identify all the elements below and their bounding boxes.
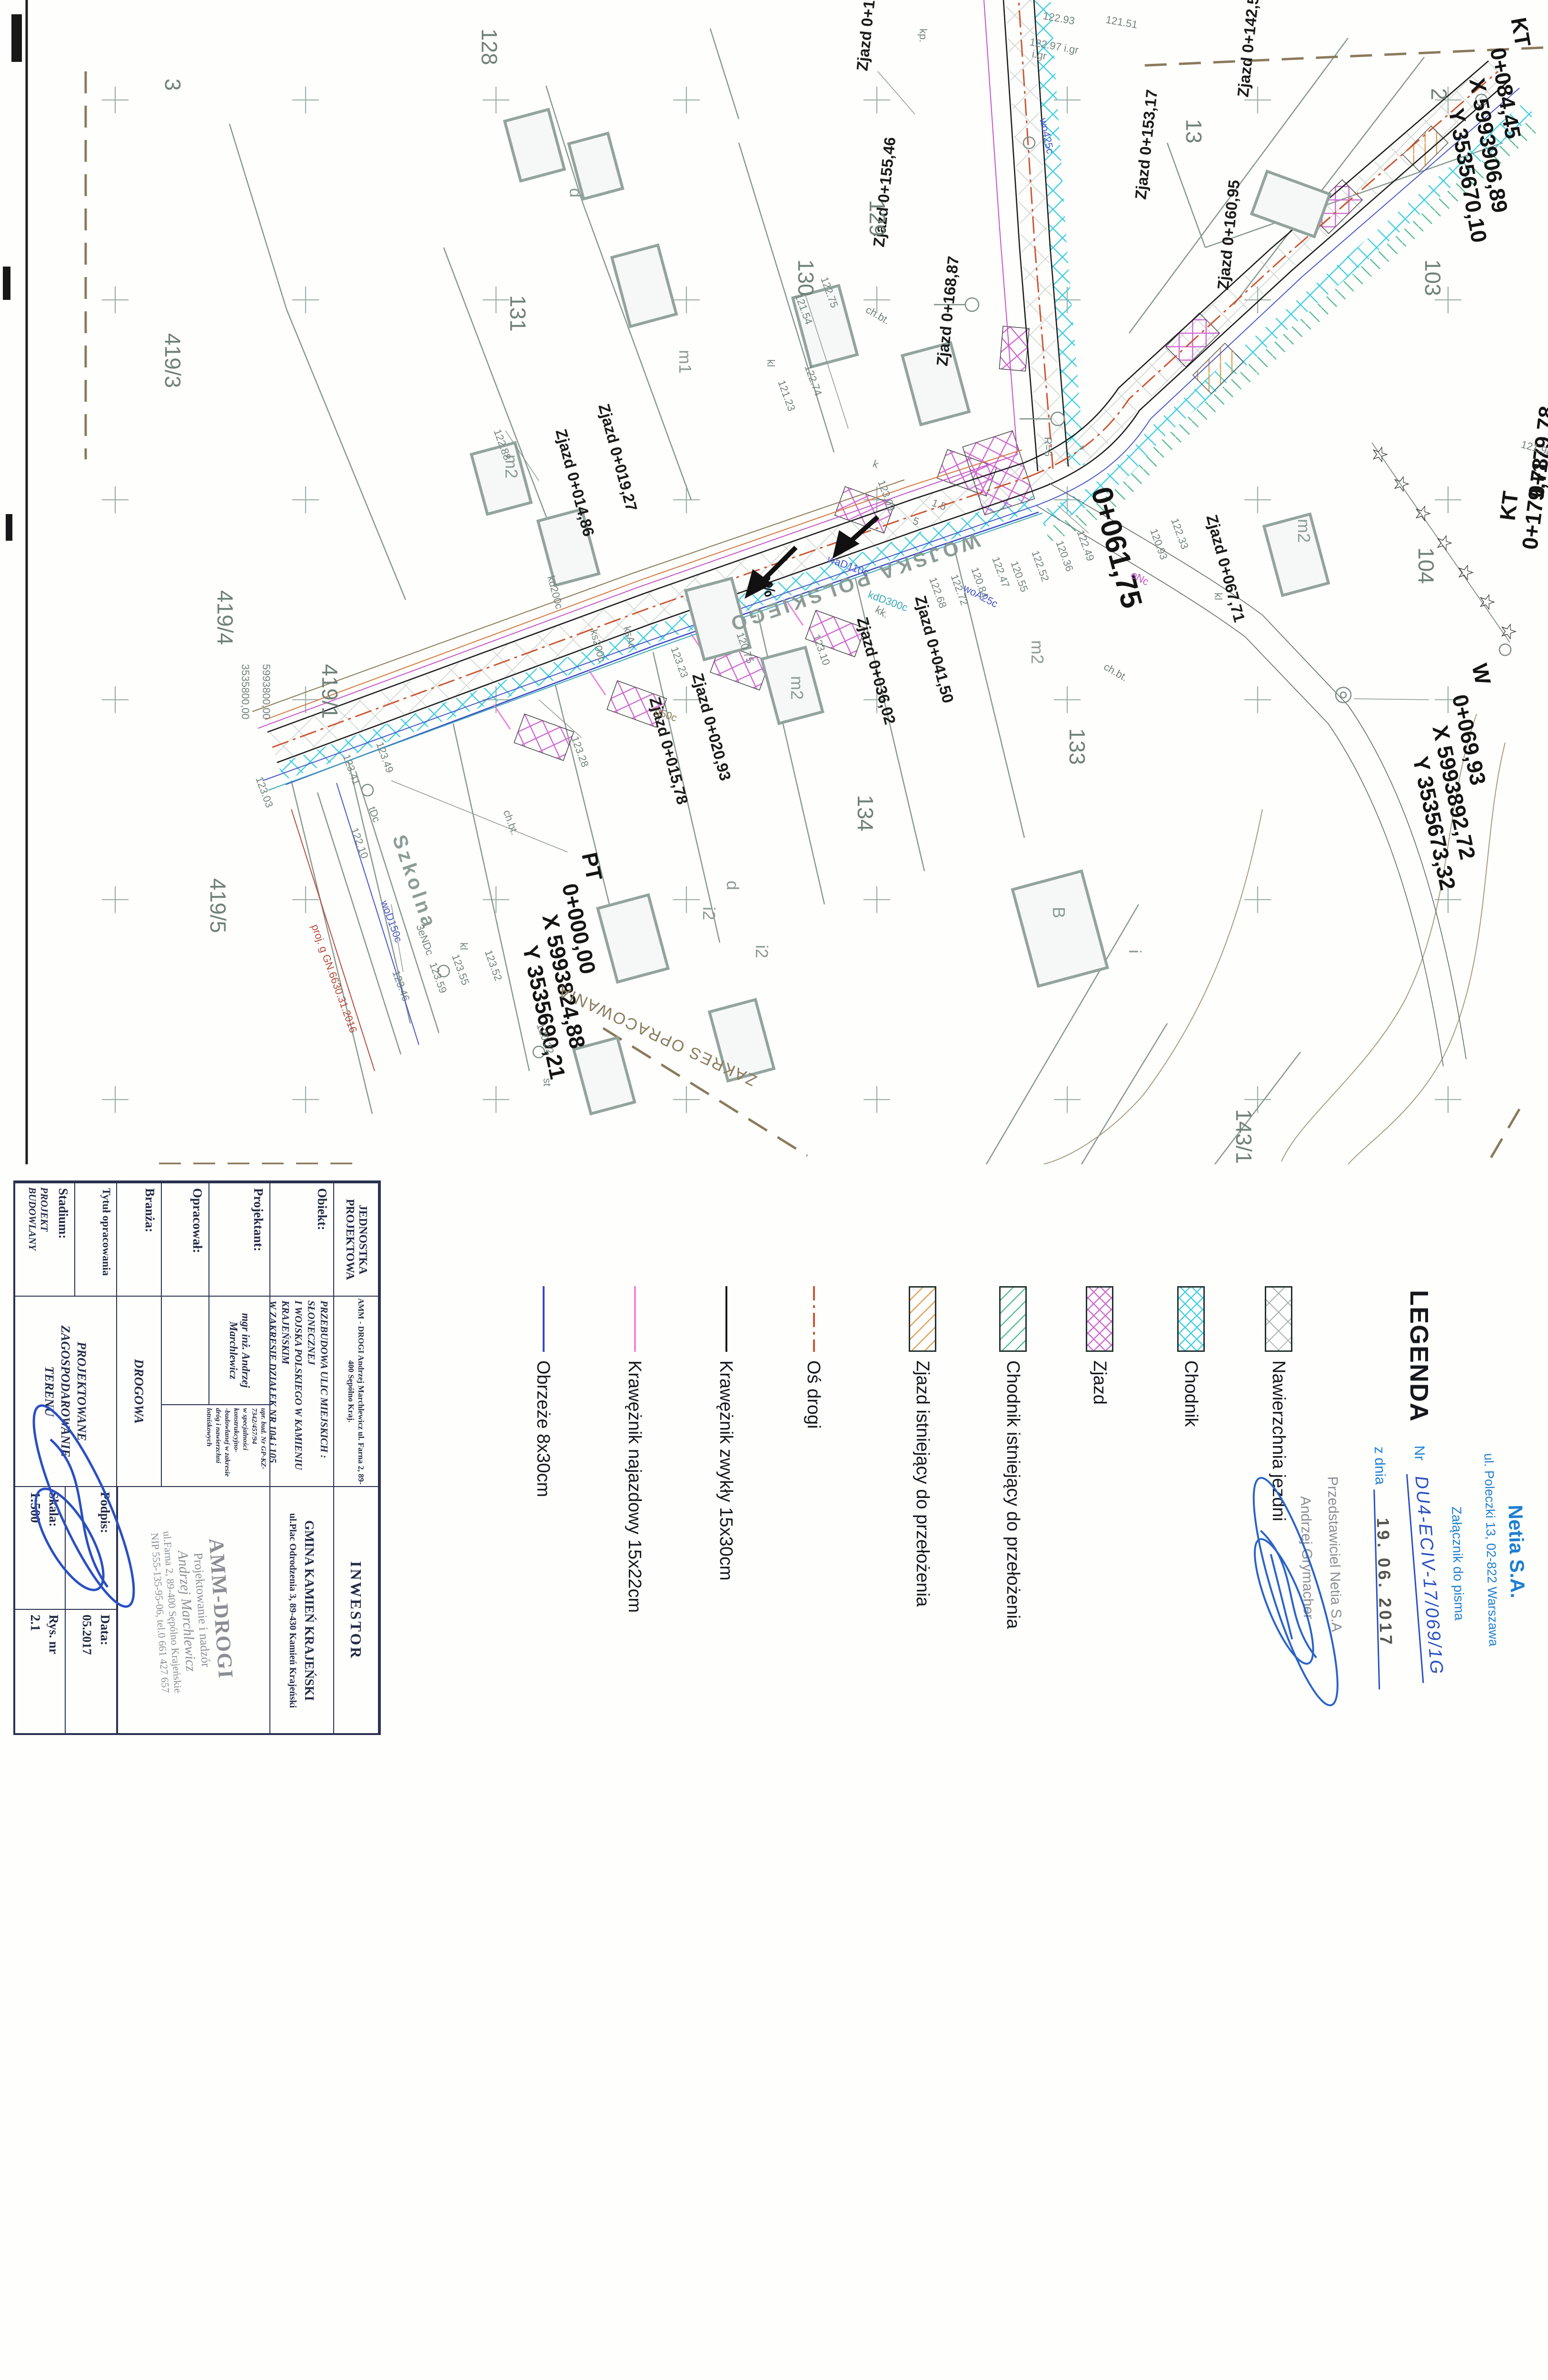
stadium-label: Stadium: [52, 1183, 74, 1296]
svg-text:☆: ☆ [1454, 563, 1477, 582]
opracowal-label: Opracował: [186, 1183, 208, 1296]
svg-text:kl: kl [765, 359, 777, 367]
svg-text:103: 103 [1420, 259, 1445, 296]
netia-address: ul. Poleczki 13, 02-822 Warszawa [1481, 1453, 1501, 1646]
netia-attachment: Załącznik do pisma [1449, 1506, 1467, 1620]
obrzeze-legend-line [543, 1286, 545, 1352]
svg-text:133: 133 [1065, 728, 1090, 765]
svg-text:☆: ☆ [1389, 475, 1413, 493]
svg-text:3: 3 [160, 79, 185, 91]
obiekt-label: Obiekt: [311, 1183, 333, 1296]
svg-text:☆: ☆ [1497, 622, 1520, 641]
svg-text:kl: kl [458, 942, 470, 950]
stadium-value: PROJEKT BUDOWLANY [24, 1183, 52, 1296]
legend-title: LEGENDA [1404, 1290, 1434, 1422]
upr-line3: -budowlanej w zakresie dróg i nawierzchn… [213, 1408, 231, 1483]
grid-label-y: 3535800,00 [239, 664, 251, 719]
legend-item-obrzeze: Obrzeże 8x30cm [524, 1257, 557, 1561]
svg-text:☆: ☆ [1475, 593, 1498, 611]
obiekt-line2: I WOJSKA POLSKIEGO W KAMIENIU KRAJEŃSKIM [279, 1300, 305, 1482]
svg-text:419/5: 419/5 [206, 878, 230, 933]
opracowal-value [161, 1296, 209, 1405]
jednostka-label: JEDNOSTKA PROJEKTOWA [339, 1183, 373, 1296]
obiekt-line3: W ZAKRESIE DZIAŁEK NR 104 i 105 [269, 1300, 279, 1482]
svg-text:131: 131 [506, 295, 530, 332]
svg-text:m2: m2 [1294, 519, 1314, 543]
netia-company: Netia S.A. [1504, 1505, 1529, 1598]
legend-item-os-drogi: Oś drogi [794, 1257, 827, 1561]
nawierzchnia-swatch [1265, 1286, 1292, 1352]
inwestor-name: GMINA KAMIEŃ KRAJEŃSKI [302, 1513, 317, 1708]
amm-drogi-stamp: AMM-DROGI Projektowanie i nadzór Andrzej… [149, 1527, 239, 1695]
netia-nr-label: Nr [1411, 1445, 1428, 1461]
zjazd-swatch [1086, 1286, 1113, 1352]
upr-line1: upr. bud. Nr GP-KZ-7342/457/94 [249, 1408, 268, 1483]
svg-text:m1: m1 [675, 350, 695, 374]
tytul-label: Tytuł opracowania [96, 1183, 116, 1296]
jednostka-value: AMM - DROGI Andrzej Marchlewicz ul. Farn… [346, 1297, 366, 1486]
svg-text:i2: i2 [752, 945, 772, 958]
chodnik-istniejacy-swatch [999, 1286, 1027, 1352]
kraweznik-najazdowy-line [634, 1286, 636, 1352]
svg-text:KT: KT [1506, 16, 1536, 49]
svg-text:419/4: 419/4 [213, 590, 238, 645]
netia-signature [1211, 1457, 1376, 1727]
projektant-name: mgr inż. Andrzej Marchlewicz [227, 1297, 252, 1404]
netia-stamp: Netia S.A. ul. Poleczki 13, 02-822 Warsz… [1191, 1433, 1533, 1756]
site-plan-map: ☆ ☆ ☆ ☆ ☆ ☆ ☆ KT 0+084,45 X 5993906,89 Y… [0, 0, 1548, 1164]
chodnik-swatch [1177, 1286, 1205, 1352]
inwestor-label: INWESTOR [344, 1557, 369, 1665]
legend-item-kraweznik-najazdowy: Krawężnik najazdowy 15x22cm [615, 1257, 648, 1561]
netia-date-label: z dnia [1371, 1447, 1388, 1485]
svg-text:143/12: 143/12 [1231, 1109, 1256, 1164]
legend-item-chodnik-istniejacy: Chodnik istniejący do przełożenia [993, 1257, 1027, 1561]
svg-text:2: 2 [1427, 88, 1451, 100]
grid-label-x: 5993800,00 [260, 664, 272, 719]
svg-text:☆: ☆ [1411, 504, 1434, 523]
projektant-label: Projektant: [247, 1183, 269, 1296]
svg-text:B: B [1049, 907, 1069, 918]
netia-nr-value: DU4-ECIV-17/069/1G [1406, 1472, 1447, 1683]
svg-text:☆: ☆ [1368, 445, 1391, 464]
svg-text:KT: KT [1495, 490, 1523, 522]
svg-text:128: 128 [477, 29, 502, 65]
upr-line2: w specjalności konstrukcyjno- [231, 1408, 249, 1483]
os-drogi-line [813, 1286, 815, 1352]
svg-text:kl: kl [1212, 593, 1224, 600]
svg-text:419/3: 419/3 [160, 333, 185, 388]
svg-text:R=6: R=6 [1042, 437, 1054, 456]
svg-text:13: 13 [1181, 119, 1206, 143]
legend-item-zjazd-istniejacy: Zjazd istniejący do przełożenia [903, 1257, 936, 1561]
svg-text:d: d [566, 188, 585, 198]
inwestor-address: ul.Plac Odrodzenia 3, 89-430 Kamień Kraj… [287, 1513, 298, 1708]
titleblock-signature [12, 1382, 150, 1649]
drawing-sheet: ☆ ☆ ☆ ☆ ☆ ☆ ☆ KT 0+084,45 X 5993906,89 Y… [0, 0, 1548, 2380]
svg-text:419/1: 419/1 [318, 664, 342, 719]
legend-item-zjazd: Zjazd [1080, 1257, 1113, 1561]
svg-text:m2: m2 [1028, 640, 1047, 664]
svg-text:kp.: kp. [917, 29, 929, 42]
kraweznik-zwykly-line [725, 1286, 727, 1352]
svg-text:m2: m2 [787, 676, 807, 700]
obiekt-line1: PRZEBUDOWA ULIC MIEJSKICH : SŁONECZNEJ [305, 1300, 330, 1482]
svg-text:134: 134 [853, 795, 878, 832]
svg-text:st: st [541, 1078, 553, 1086]
svg-text:130: 130 [794, 259, 818, 296]
legend-item-kraweznik-zwykly: Krawężnik zwykły 15x30cm [706, 1257, 740, 1561]
upr-line4: lotniskowych [204, 1408, 213, 1483]
title-block: JEDNOSTKA PROJEKTOWA AMM - DROGI Andrzej… [13, 1180, 381, 1735]
scanned-page: ☆ ☆ ☆ ☆ ☆ ☆ ☆ KT 0+084,45 X 5993906,89 Y… [0, 0, 1548, 2380]
branza-label: Branża: [139, 1183, 161, 1296]
zjazd-istniejacy-swatch [909, 1286, 936, 1352]
svg-text:d: d [723, 881, 743, 890]
svg-text:104: 104 [1414, 547, 1439, 584]
svg-text:129: 129 [865, 200, 890, 237]
svg-text:i: i [1125, 950, 1145, 953]
svg-text:i2: i2 [699, 907, 719, 920]
